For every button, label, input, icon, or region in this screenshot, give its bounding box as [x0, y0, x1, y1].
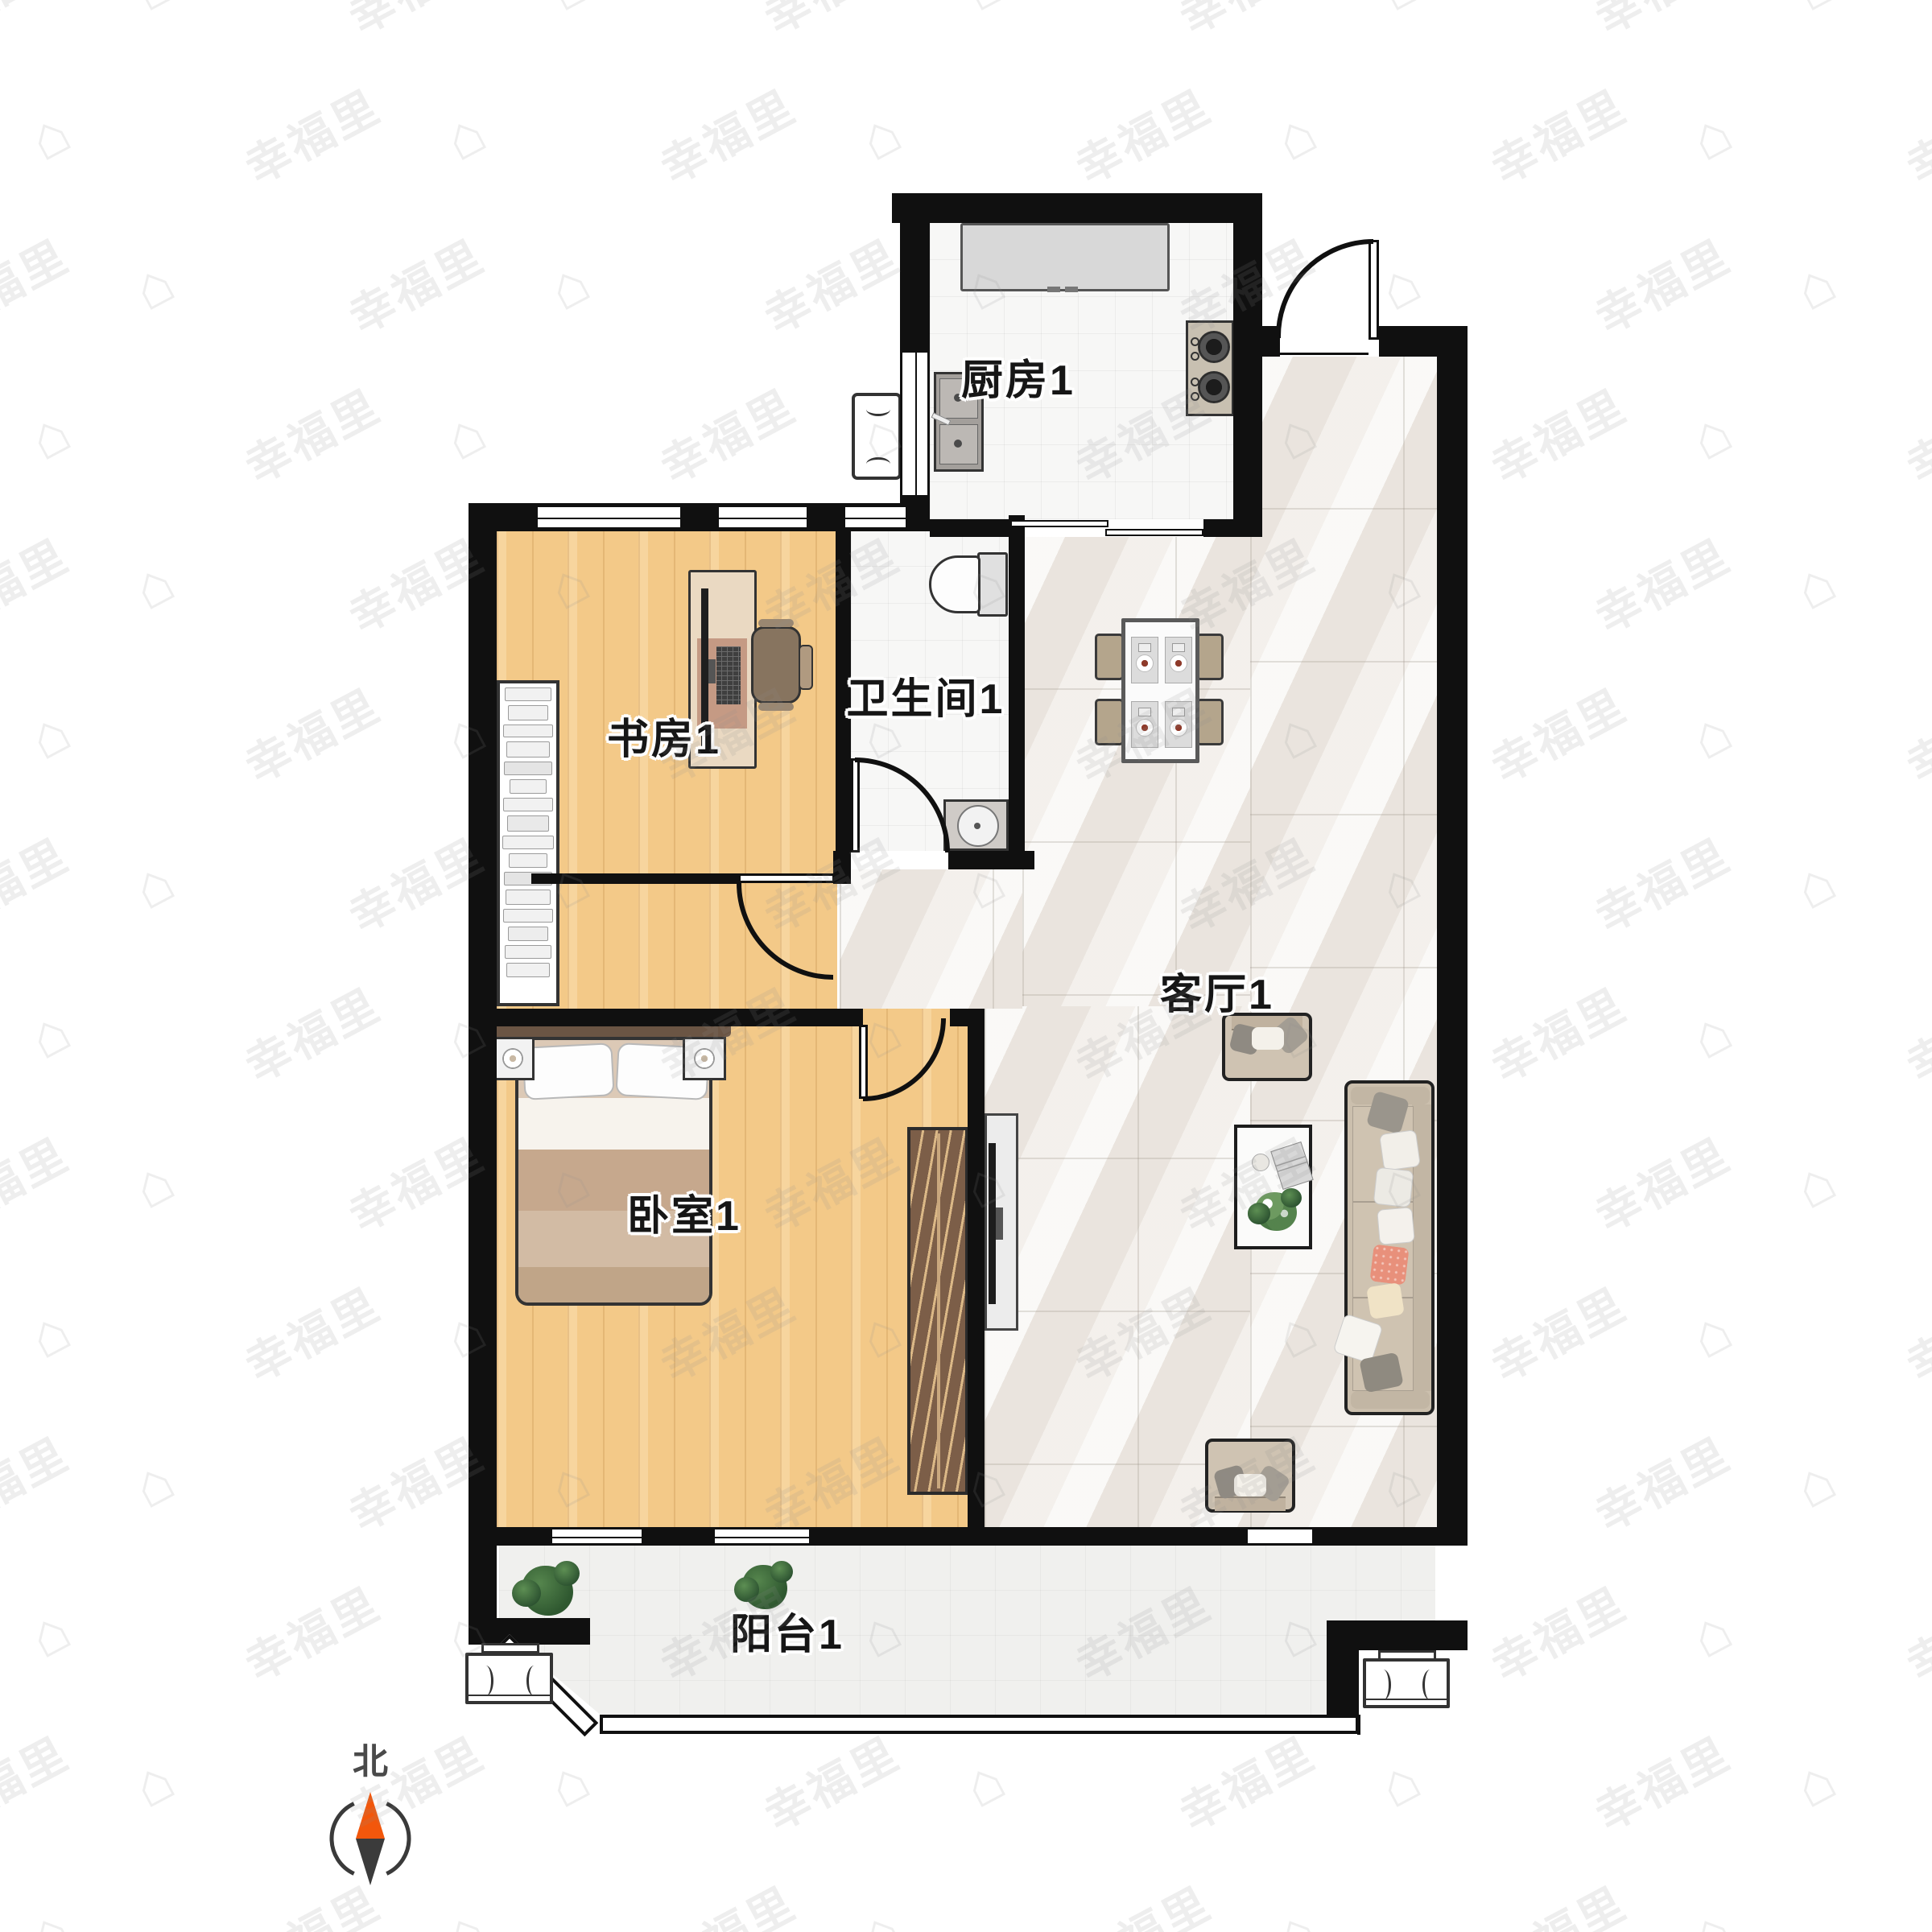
watermark-house-icon: ⌂	[1783, 246, 1847, 324]
watermark-text: 幸福里	[1894, 969, 1932, 1095]
plate-decor	[1252, 1154, 1269, 1171]
watermark-house-icon: ⌂	[1679, 1893, 1743, 1932]
chair-headrest	[799, 645, 813, 690]
chair-armrest	[758, 619, 794, 627]
watermark-text: 幸福里	[233, 1568, 391, 1694]
stove	[1186, 320, 1234, 416]
watermark-house-icon: ⌂	[1264, 1893, 1327, 1932]
watermark-text: 幸福里	[1063, 1868, 1222, 1932]
watermark-text: 幸福里	[1583, 520, 1741, 646]
wall-left-foot	[469, 1618, 590, 1645]
room-label-living: 客厅1	[1133, 960, 1302, 1021]
watermark-house-icon: ⌂	[537, 0, 601, 25]
watermark-house-icon: ⌂	[1679, 696, 1743, 773]
watermark-text: 幸福里	[0, 1418, 79, 1544]
floor-plan: 厨房1 卫生间1 书房1 卧室1 客厅1 阳台1 北 幸福里⌂幸福里⌂幸福里⌂幸…	[0, 0, 1932, 1932]
bathroom-sink	[943, 799, 1009, 851]
toilet-bowl	[929, 555, 980, 613]
bed-pillow	[522, 1042, 614, 1100]
bed-blanket	[518, 1267, 709, 1302]
ac-unit	[1363, 1658, 1450, 1708]
watermark-house-icon: ⌂	[952, 1744, 1016, 1821]
stove-knob	[1191, 337, 1199, 346]
entry-door-arc	[1278, 242, 1373, 338]
watermark-text: 幸福里	[233, 1269, 391, 1394]
watermark-text: 幸福里	[1479, 370, 1637, 496]
watermark-text: 幸福里	[0, 0, 79, 47]
entry-door-leaf	[1368, 240, 1379, 340]
watermark-house-icon: ⌂	[1679, 97, 1743, 174]
watermark-house-icon: ⌂	[18, 696, 81, 773]
monitor-stand	[708, 659, 716, 683]
cup	[1172, 708, 1185, 716]
watermark-text: 幸福里	[1894, 1568, 1932, 1694]
sofa-pillow-cream	[1366, 1282, 1405, 1319]
watermark-text: 幸福里	[1479, 1269, 1637, 1394]
watermark-text: 幸福里	[1583, 1119, 1741, 1245]
armchair-cushion	[1234, 1474, 1266, 1496]
watermark-house-icon: ⌂	[122, 546, 185, 623]
cup	[1138, 708, 1151, 716]
watermark-text: 幸福里	[1894, 1269, 1932, 1394]
armchair	[1222, 1013, 1312, 1081]
ac-unit	[465, 1653, 553, 1704]
room-label-balcony: 阳台1	[703, 1600, 872, 1661]
watermark-text: 幸福里	[233, 969, 391, 1095]
watermark-text: 幸福里	[752, 221, 910, 346]
compass-rose	[326, 1787, 415, 1892]
bed-sheet	[518, 1098, 709, 1150]
compass-needle-north	[356, 1792, 385, 1839]
wall-outer-right	[1437, 326, 1468, 1546]
dining-chair	[1095, 699, 1124, 745]
compass-needle-south	[356, 1839, 385, 1885]
toilet-tank	[977, 552, 1008, 617]
fridge	[852, 393, 902, 480]
tv-mount	[996, 1207, 1003, 1240]
wall-entry-left-jamb	[1256, 326, 1280, 357]
watermark-house-icon: ⌂	[18, 1594, 81, 1671]
watermark-house-icon: ⌂	[1679, 1294, 1743, 1372]
sofa-pillow	[1379, 1129, 1421, 1171]
wall-right-foot	[1327, 1620, 1468, 1650]
bathroom-door-leaf	[851, 758, 860, 852]
wall-kitchen-bottom-left	[930, 519, 1010, 537]
cup	[1138, 643, 1151, 652]
bedroom-door-leaf	[859, 1025, 868, 1099]
stove-knob	[1191, 352, 1199, 361]
nook-window	[843, 505, 908, 530]
plate	[1136, 654, 1154, 672]
tv	[989, 1143, 996, 1304]
bookshelf	[497, 680, 559, 1006]
watermark-house-icon: ⌂	[433, 97, 497, 174]
kitchen-window	[900, 350, 930, 497]
watermark-house-icon: ⌂	[1783, 1744, 1847, 1821]
watermark-text: 幸福里	[233, 370, 391, 496]
coffee-table	[1234, 1125, 1312, 1249]
compass: 北	[318, 1732, 423, 1893]
wardrobe	[907, 1127, 968, 1495]
nightstand	[491, 1037, 535, 1080]
watermark-house-icon: ⌂	[122, 246, 185, 324]
watermark-text: 幸福里	[0, 221, 79, 346]
watermark-text: 幸福里	[233, 71, 391, 196]
keyboard	[716, 646, 741, 704]
watermark-house-icon: ⌂	[1783, 546, 1847, 623]
wall-study-partition	[531, 873, 738, 884]
wall-kitchen-bottom-right	[1203, 519, 1262, 537]
stove-knob	[1191, 378, 1199, 386]
room-label-study: 书房1	[580, 705, 749, 766]
watermark-text: 幸福里	[1167, 0, 1326, 47]
fridge-mark-top	[866, 402, 890, 416]
sofa-pillow	[1373, 1167, 1414, 1208]
watermark-house-icon: ⌂	[537, 1744, 601, 1821]
kitchen-sliding-door-1	[1010, 520, 1108, 527]
watermark-house-icon: ⌂	[1368, 0, 1431, 25]
armchair-cushion	[1252, 1027, 1284, 1050]
hall-floor-bedroom	[840, 869, 1022, 1009]
lamp	[502, 1048, 523, 1069]
watermark-text: 幸福里	[1063, 71, 1222, 196]
watermark-house-icon: ⌂	[433, 1893, 497, 1932]
sink-drain	[954, 440, 962, 448]
watermark-house-icon: ⌂	[952, 0, 1016, 25]
watermark-text: 幸福里	[1479, 670, 1637, 795]
bedroom-window-2	[712, 1527, 811, 1546]
burner	[1198, 331, 1230, 363]
counter-handle	[1047, 287, 1060, 292]
watermark-text: 幸福里	[1479, 1868, 1637, 1932]
study-window-1	[535, 505, 683, 530]
wardrobe-rod	[937, 1133, 940, 1488]
watermark-text: 幸福里	[648, 71, 807, 196]
ac-mark	[478, 1666, 493, 1696]
wall-outer-left	[469, 503, 497, 1618]
compass-north-label: 北	[318, 1732, 423, 1784]
plate	[1170, 654, 1187, 672]
balcony-floor	[499, 1546, 1435, 1716]
basin-drain	[974, 823, 980, 829]
watermark-text: 幸福里	[0, 1119, 79, 1245]
entry-threshold	[1280, 328, 1368, 355]
watermark-house-icon: ⌂	[18, 1294, 81, 1372]
ac-mark	[1422, 1670, 1438, 1700]
watermark-text: 幸福里	[1894, 670, 1932, 795]
watermark-house-icon: ⌂	[18, 396, 81, 473]
watermark-text: 幸福里	[1167, 1718, 1326, 1843]
wall-kitchen-top	[892, 193, 1262, 223]
balcony-door-opening	[1248, 1527, 1312, 1546]
watermark-text: 幸福里	[1583, 819, 1741, 945]
watermark-text: 幸福里	[648, 1868, 807, 1932]
watermark-house-icon: ⌂	[122, 1744, 185, 1821]
flowers	[1255, 1192, 1297, 1231]
watermark-house-icon: ⌂	[1679, 396, 1743, 473]
kitchen-counter	[960, 223, 1170, 291]
watermark-text: 幸福里	[0, 520, 79, 646]
magazine	[1270, 1141, 1313, 1190]
watermark-house-icon: ⌂	[848, 97, 912, 174]
wall-bathroom-bottom	[948, 851, 1034, 869]
chair-armrest	[758, 703, 794, 711]
watermark-house-icon: ⌂	[1783, 845, 1847, 923]
wall-kitchen-right	[1233, 193, 1262, 535]
fridge-mark-bottom	[866, 457, 890, 471]
room-label-bathroom: 卫生间1	[829, 665, 1022, 725]
watermark-text: 幸福里	[1479, 1568, 1637, 1694]
plate	[1170, 719, 1187, 737]
watermark-house-icon: ⌂	[848, 1893, 912, 1932]
watermark-text: 幸福里	[1583, 0, 1741, 47]
room-label-bedroom: 卧室1	[600, 1182, 769, 1242]
watermark-text: 幸福里	[752, 1718, 910, 1843]
desk-chair	[751, 626, 801, 704]
burner	[1198, 371, 1230, 403]
watermark-text: 幸福里	[648, 370, 807, 496]
watermark-house-icon: ⌂	[122, 845, 185, 923]
watermark-house-icon: ⌂	[18, 995, 81, 1072]
watermark-house-icon: ⌂	[122, 1145, 185, 1222]
watermark-house-icon: ⌂	[18, 1893, 81, 1932]
watermark-text: 幸福里	[233, 670, 391, 795]
dining-chair	[1095, 634, 1124, 680]
watermark-text: 幸福里	[1583, 221, 1741, 346]
watermark-text: 幸福里	[0, 1718, 79, 1843]
watermark-house-icon: ⌂	[537, 246, 601, 324]
watermark-house-icon: ⌂	[1783, 1145, 1847, 1222]
sofa	[1344, 1080, 1435, 1415]
wall-bedroom-top-left	[469, 1009, 863, 1026]
study-door-leaf	[738, 873, 835, 883]
watermark-text: 幸福里	[1894, 71, 1932, 196]
watermark-text: 幸福里	[0, 819, 79, 945]
watermark-text: 幸福里	[752, 0, 910, 47]
watermark-text: 幸福里	[1583, 1718, 1741, 1843]
lamp	[694, 1048, 715, 1069]
watermark-house-icon: ⌂	[433, 396, 497, 473]
dining-chair	[1196, 634, 1224, 680]
counter-handle	[1065, 287, 1078, 292]
watermark-house-icon: ⌂	[18, 97, 81, 174]
watermark-house-icon: ⌂	[1783, 0, 1847, 25]
watermark-text: 幸福里	[1479, 71, 1637, 196]
nightstand	[683, 1037, 726, 1080]
watermark-house-icon: ⌂	[1783, 1444, 1847, 1521]
watermark-text: 幸福里	[336, 221, 495, 346]
plant	[522, 1566, 573, 1616]
dining-table	[1121, 618, 1199, 763]
sofa-pillow	[1377, 1207, 1415, 1245]
bedroom-window-1	[550, 1527, 644, 1546]
watermark-text: 幸福里	[336, 0, 495, 47]
watermark-house-icon: ⌂	[1679, 1594, 1743, 1671]
cup	[1172, 643, 1185, 652]
watermark-house-icon: ⌂	[1679, 995, 1743, 1072]
ac-mark	[526, 1666, 542, 1696]
watermark-text: 幸福里	[1894, 370, 1932, 496]
room-label-kitchen: 厨房1	[934, 346, 1103, 407]
watermark-house-icon: ⌂	[122, 0, 185, 25]
balcony-railing-bottom	[600, 1715, 1359, 1734]
watermark-house-icon: ⌂	[1264, 97, 1327, 174]
wall-bedroom-east	[968, 1009, 985, 1546]
sofa-armrest-bottom	[1351, 1391, 1430, 1409]
ac-mark	[1376, 1670, 1391, 1700]
watermark-text: 幸福里	[1894, 1868, 1932, 1932]
armchair	[1205, 1439, 1295, 1513]
watermark-text: 幸福里	[1479, 969, 1637, 1095]
kitchen-sliding-door-2	[1105, 529, 1203, 536]
sofa-pillow-coral	[1369, 1244, 1409, 1285]
watermark-house-icon: ⌂	[1368, 1744, 1431, 1821]
study-window-2	[716, 505, 809, 530]
dining-chair	[1196, 699, 1224, 745]
watermark-house-icon: ⌂	[122, 1444, 185, 1521]
wall-kitchen-left-upper	[900, 193, 930, 350]
stove-knob	[1191, 392, 1199, 401]
watermark-text: 幸福里	[1583, 1418, 1741, 1544]
plate	[1136, 719, 1154, 737]
wall-bathroom-door-corner	[833, 851, 851, 884]
